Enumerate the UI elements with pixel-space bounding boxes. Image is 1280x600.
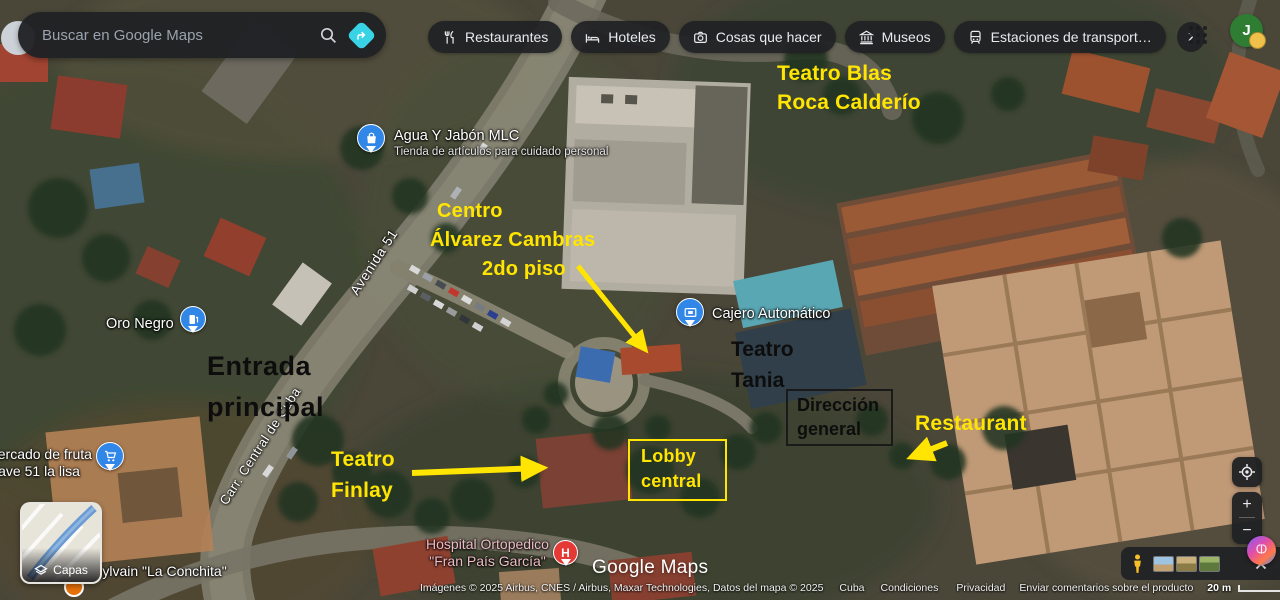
layers-button[interactable]: Capas	[20, 502, 102, 584]
chip-museos[interactable]: Museos	[845, 21, 945, 53]
chip-label: Museos	[882, 29, 931, 45]
feedback-link[interactable]: Enviar comentarios sobre el producto	[1019, 582, 1193, 594]
store-title: Agua Y Jabón MLC	[394, 128, 519, 144]
camera-icon	[693, 30, 708, 45]
restaurant-icon	[442, 30, 457, 45]
my-location-button[interactable]	[1232, 457, 1262, 487]
chip-label: Estaciones de transport…	[991, 29, 1152, 45]
market-line2: ave 51 la lisa	[0, 463, 80, 479]
atm-label[interactable]: Cajero Automático	[712, 306, 830, 322]
imagery-thumbnail-3[interactable]	[1199, 556, 1220, 572]
market-line1: Mercado de fruta	[0, 446, 92, 462]
transit-icon	[968, 30, 983, 45]
atm-icon	[684, 306, 697, 319]
attribution-bar: Imágenes © 2025 Airbus, CNES / Airbus, M…	[420, 582, 1280, 594]
annotation-teatro-tania: Teatro Tania	[731, 334, 794, 396]
gas-station-text: Oro Negro	[106, 316, 174, 332]
chip-hoteles[interactable]: Hoteles	[571, 21, 669, 53]
annotation-entrada-principal: Entrada principal	[207, 346, 324, 428]
google-apps-button[interactable]	[1189, 26, 1207, 44]
avatar-status-badge	[1249, 32, 1266, 49]
imagery-thumbnail-1[interactable]	[1153, 556, 1174, 572]
privacy-link[interactable]: Privacidad	[956, 582, 1005, 594]
extension-assistant-button[interactable]	[1247, 536, 1276, 565]
terms-link[interactable]: Condiciones	[881, 582, 939, 594]
store-label[interactable]: Agua Y Jabón MLC Tienda de artículos par…	[394, 128, 608, 158]
brain-icon	[1253, 543, 1270, 558]
market-pin[interactable]	[96, 442, 124, 470]
pegman-icon	[1131, 554, 1144, 574]
hospital-line1: Hospital Ortopedico	[426, 536, 549, 552]
annotation-direccion-general: Dirección general	[786, 389, 893, 446]
scale-bar	[1238, 585, 1280, 592]
chip-cosas-que-hacer[interactable]: Cosas que hacer	[679, 21, 836, 53]
chip-label: Hoteles	[608, 29, 655, 45]
category-chips: Restaurantes Hoteles Cosas que hacer Mus…	[428, 21, 1205, 53]
chip-estaciones-transporte[interactable]: Estaciones de transport…	[954, 21, 1166, 53]
annotation-teatro-blas: Teatro Blas Roca Calderío	[777, 59, 921, 117]
shopping-cart-icon	[104, 450, 117, 463]
hospital-label[interactable]: Hospital Ortopedico "Fran País García"	[420, 536, 555, 570]
zoom-in-button[interactable]: +	[1232, 492, 1262, 517]
directions-button[interactable]	[347, 20, 377, 50]
imagery-credits: Imágenes © 2025 Airbus, CNES / Airbus, M…	[420, 582, 823, 594]
region-label: Cuba	[839, 582, 864, 594]
my-location-icon	[1238, 463, 1256, 481]
google-maps-app: Agua Y Jabón MLC Tienda de artículos par…	[0, 0, 1280, 600]
hospital-pin[interactable]: H	[553, 540, 578, 565]
annotation-teatro-finlay: Teatro Finlay	[331, 444, 395, 506]
store-pin[interactable]	[357, 124, 385, 152]
hospital-h-icon: H	[561, 546, 570, 560]
gas-station-pin[interactable]	[180, 306, 206, 332]
satellite-map[interactable]	[0, 0, 1280, 600]
store-subtitle: Tienda de artículos para cuidado persona…	[394, 146, 608, 158]
chip-label: Cosas que hacer	[716, 29, 822, 45]
search-icon	[319, 26, 338, 45]
chip-label: Restaurantes	[465, 29, 548, 45]
annotation-centro-alvarez: Centro Álvarez Cambras 2do piso	[430, 197, 595, 284]
gas-station-label[interactable]: Oro Negro	[106, 316, 174, 332]
hotel-icon	[585, 30, 600, 45]
directions-icon	[355, 29, 368, 42]
shopping-bag-icon	[365, 132, 378, 145]
google-maps-watermark: Google Maps	[592, 557, 708, 579]
restaurant-poi-label[interactable]: Sylvain "La Conchita"	[93, 563, 227, 579]
gas-pump-icon	[188, 314, 199, 325]
search-input[interactable]	[18, 27, 311, 44]
account-avatar[interactable]: J	[1230, 14, 1263, 47]
search-bar[interactable]	[18, 12, 386, 58]
chip-restaurantes[interactable]: Restaurantes	[428, 21, 562, 53]
atm-pin[interactable]	[676, 298, 704, 326]
restaurant-poi-text: Sylvain "La Conchita"	[93, 563, 227, 579]
imagery-thumbnail-2[interactable]	[1176, 556, 1197, 572]
layers-icon	[34, 564, 48, 577]
atm-text: Cajero Automático	[712, 306, 830, 322]
annotation-lobby-central: Lobby central	[628, 439, 727, 501]
layers-label: Capas	[53, 563, 88, 577]
search-button[interactable]	[311, 26, 345, 45]
museum-icon	[859, 30, 874, 45]
hospital-line2: "Fran País García"	[429, 553, 546, 569]
scale-label[interactable]: 20 m	[1207, 582, 1231, 594]
pegman-handle[interactable]	[1121, 554, 1153, 574]
annotation-restaurant: Restaurant	[915, 412, 1027, 436]
market-label[interactable]: Mercado de fruta ave 51 la lisa	[0, 446, 92, 480]
